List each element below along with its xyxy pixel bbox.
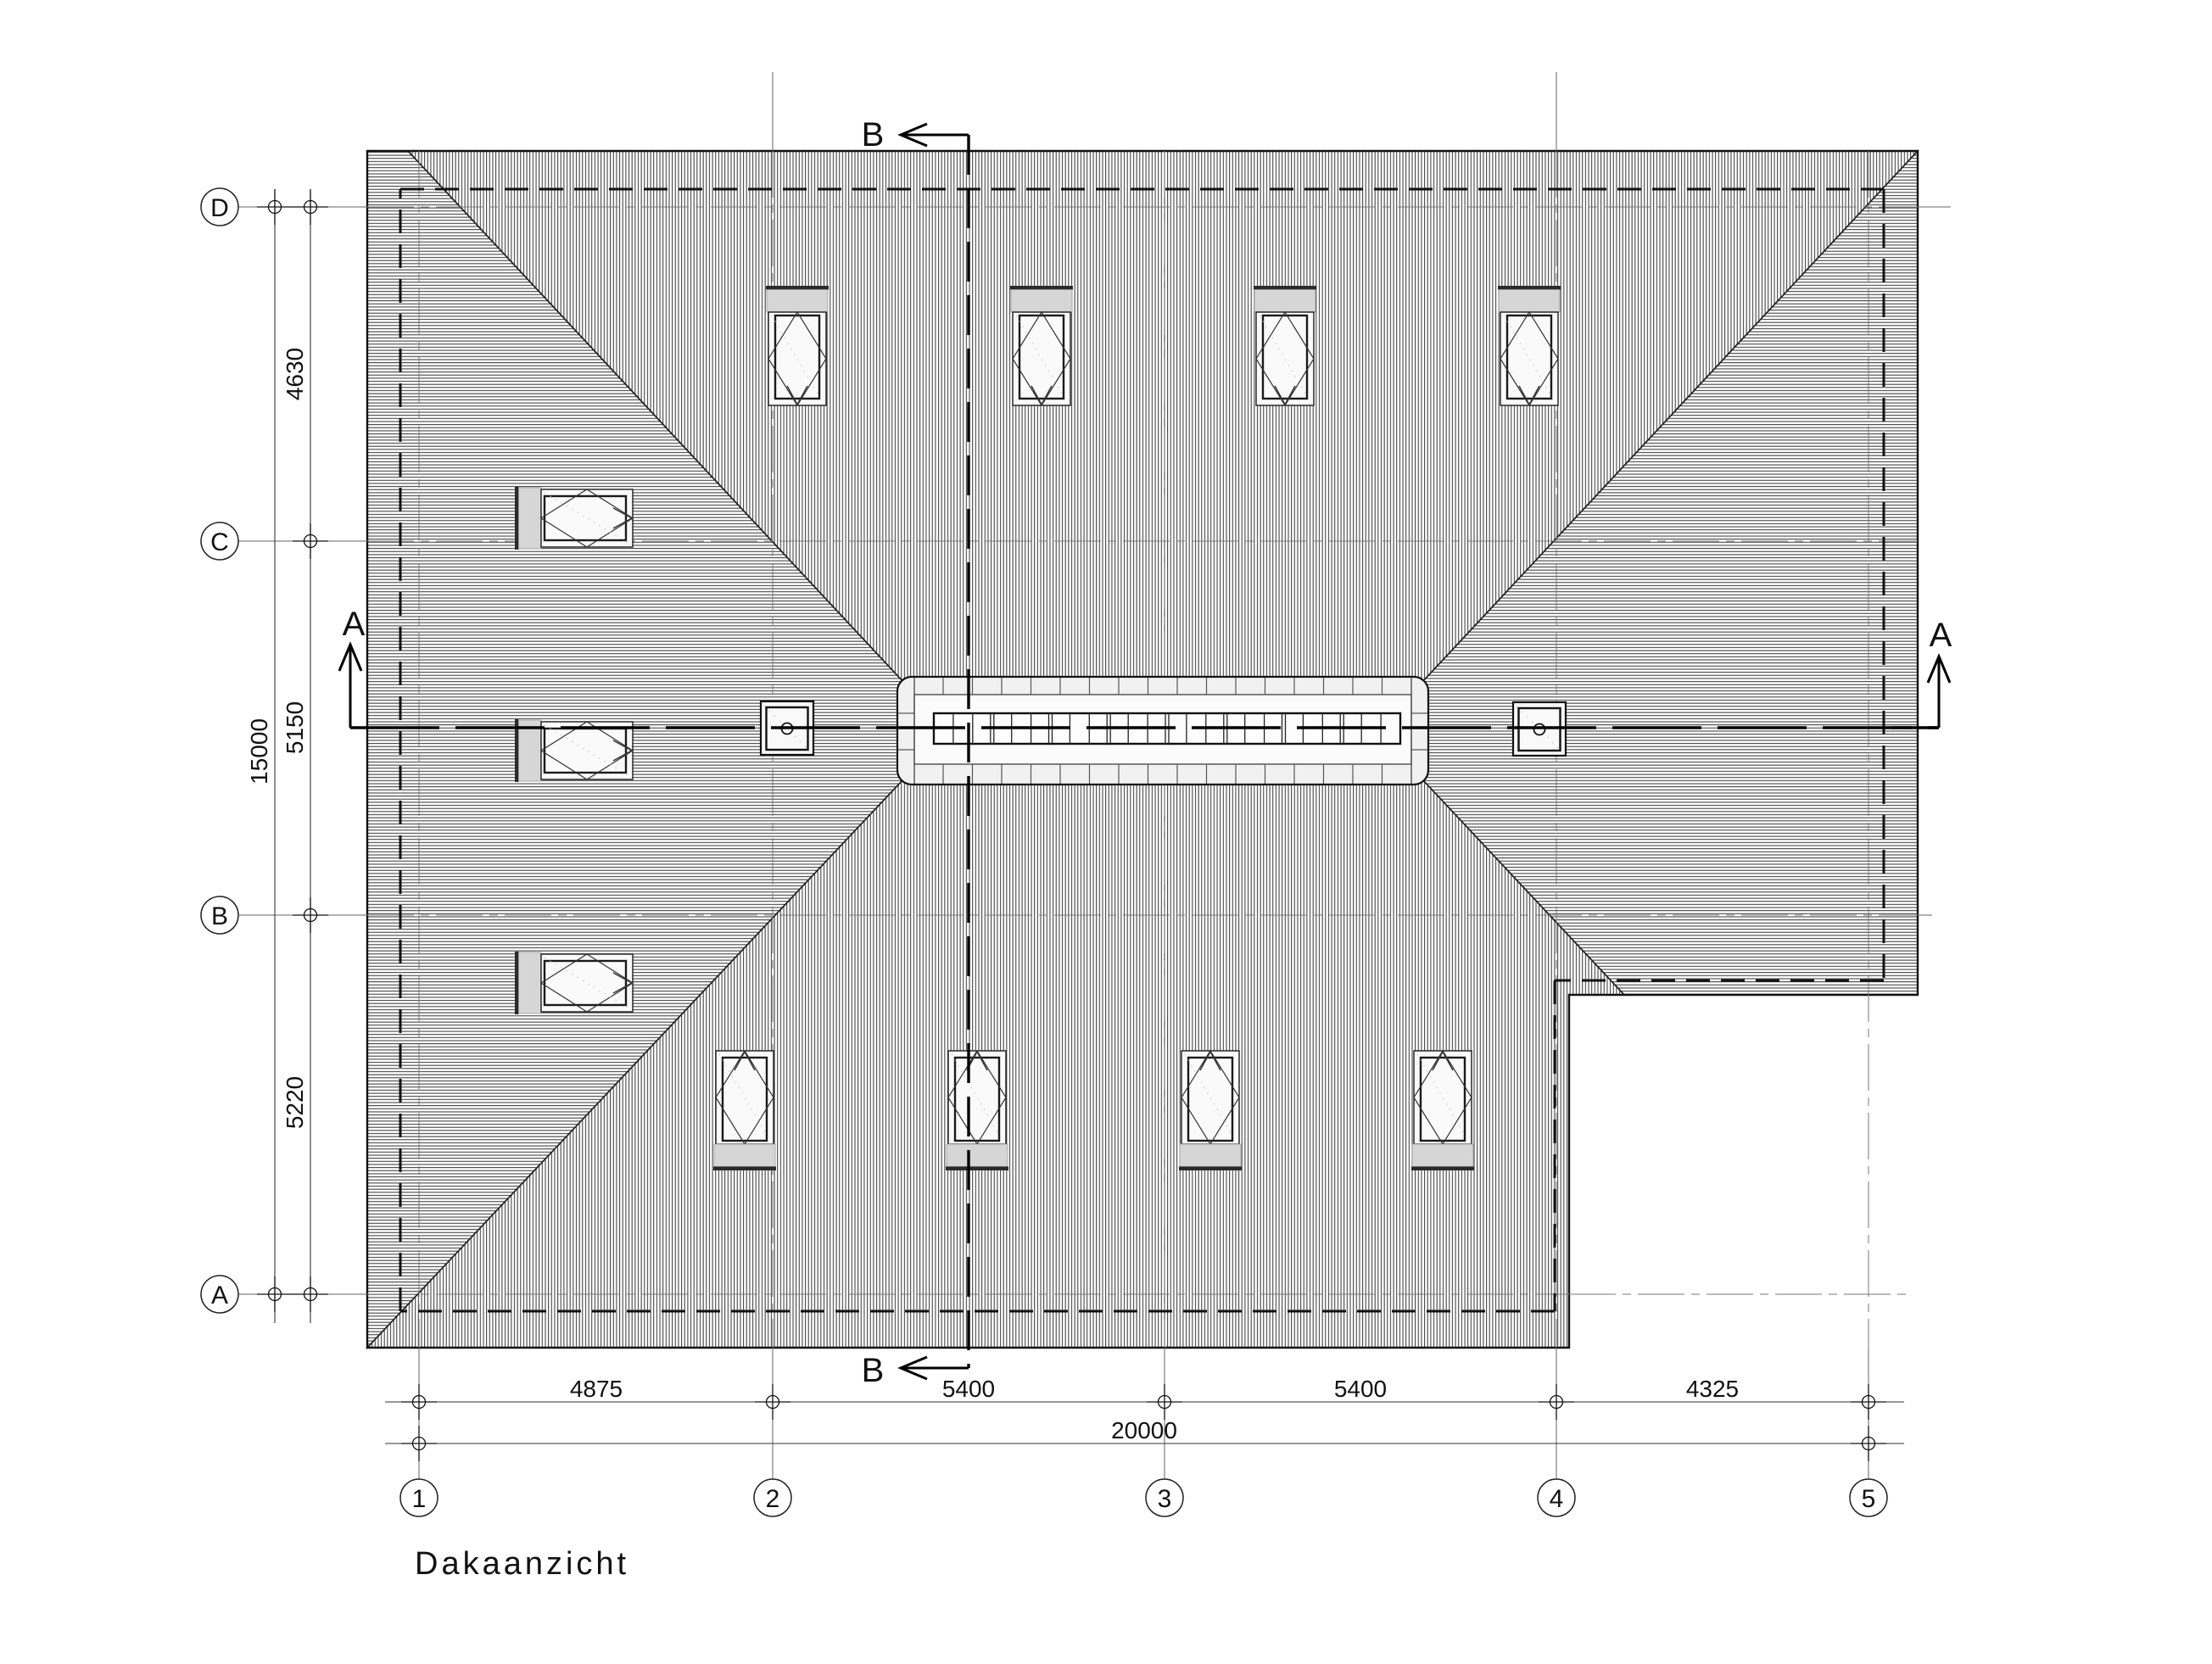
svg-text:B: B [211,902,228,930]
svg-text:D: D [210,194,229,222]
svg-text:3: 3 [1158,1485,1172,1513]
svg-text:15000: 15000 [246,718,272,785]
svg-text:4630: 4630 [282,348,308,400]
svg-text:2: 2 [766,1485,780,1513]
svg-text:C: C [210,528,229,556]
svg-text:5400: 5400 [1334,1376,1387,1402]
svg-text:1: 1 [412,1485,427,1513]
svg-text:B: B [862,116,885,154]
svg-text:20000: 20000 [1111,1417,1177,1443]
svg-text:4325: 4325 [1686,1376,1739,1402]
svg-text:A: A [1930,617,1952,654]
svg-text:5150: 5150 [282,701,308,754]
svg-text:5220: 5220 [282,1076,308,1129]
svg-text:5400: 5400 [942,1376,995,1402]
svg-text:A: A [211,1282,228,1309]
svg-text:B: B [862,1352,885,1389]
svg-text:4: 4 [1550,1485,1564,1513]
svg-text:A: A [343,606,366,643]
svg-text:5: 5 [1862,1485,1876,1513]
svg-text:4875: 4875 [570,1376,623,1402]
svg-text:Dakaanzicht: Dakaanzicht [415,1546,629,1582]
